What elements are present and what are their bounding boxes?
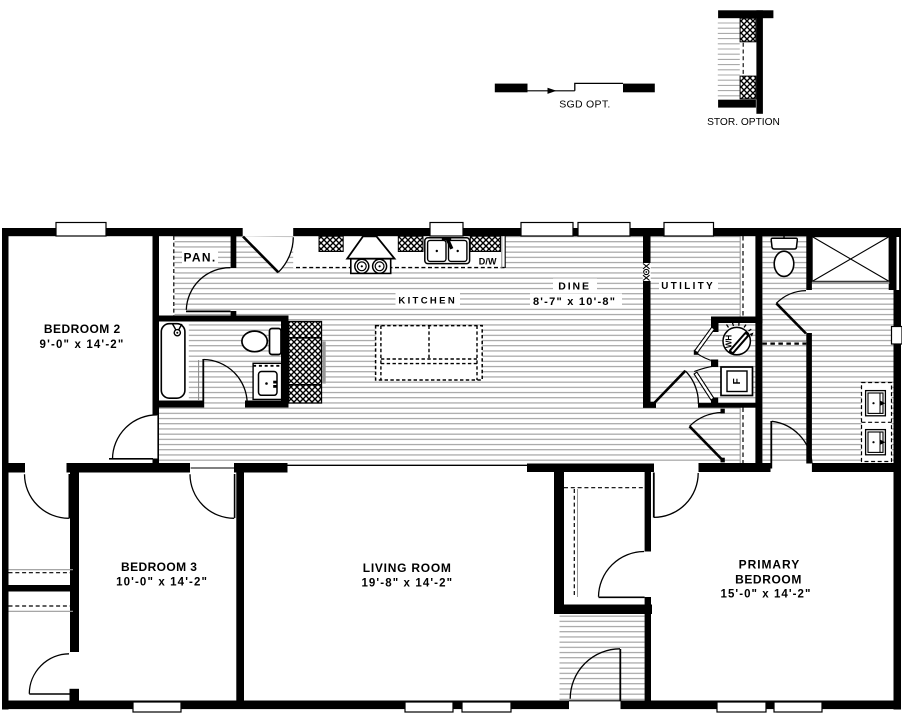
svg-text:15'-0" x 14'-2": 15'-0" x 14'-2" (721, 589, 812, 601)
svg-text:STOR. OPTION: STOR. OPTION (707, 117, 780, 128)
svg-text:8'-7" x 10'-8": 8'-7" x 10'-8" (533, 296, 616, 308)
svg-text:KITCHEN: KITCHEN (398, 295, 457, 306)
svg-text:10'-0" x 14'-2": 10'-0" x 14'-2" (116, 577, 208, 589)
svg-text:BEDROOM 3: BEDROOM 3 (121, 560, 197, 574)
svg-text:DINE: DINE (558, 281, 591, 293)
svg-text:BEDROOM 2: BEDROOM 2 (44, 322, 121, 336)
svg-text:LIVING ROOM: LIVING ROOM (363, 561, 452, 575)
svg-text:WH: WH (725, 335, 734, 349)
svg-text:F: F (732, 378, 743, 384)
svg-text:BEDROOM: BEDROOM (735, 572, 802, 586)
svg-text:SGD OPT.: SGD OPT. (559, 99, 610, 111)
svg-text:9'-0" x 14'-2": 9'-0" x 14'-2" (40, 339, 125, 351)
svg-text:UTILITY: UTILITY (661, 281, 715, 292)
svg-text:PAN.: PAN. (184, 251, 217, 265)
svg-text:D/W: D/W (479, 256, 497, 266)
svg-text:PRIMARY: PRIMARY (739, 557, 801, 571)
svg-text:19'-8" x 14'-2": 19'-8" x 14'-2" (361, 577, 453, 589)
